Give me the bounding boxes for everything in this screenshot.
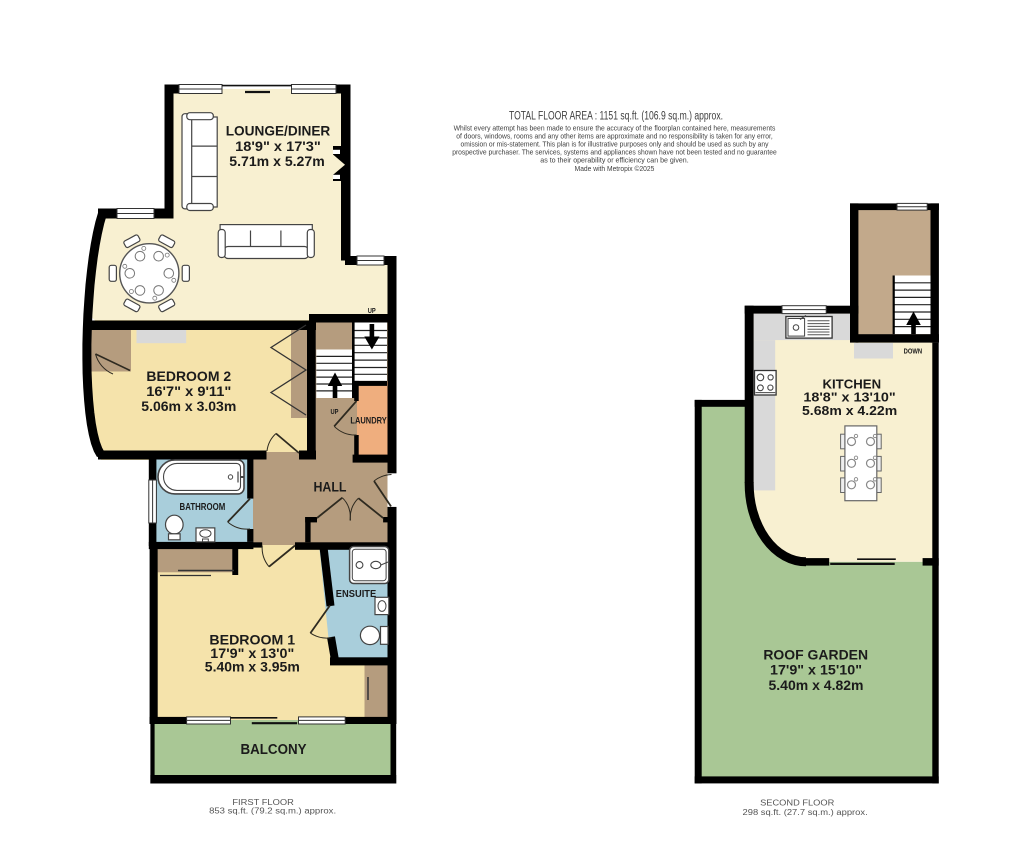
svg-text:5.06m x 3.03m: 5.06m x 3.03m: [141, 399, 236, 414]
svg-text:SECOND FLOOR: SECOND FLOOR: [760, 798, 834, 807]
svg-text:UP: UP: [331, 409, 339, 416]
svg-text:5.71m x 5.27m: 5.71m x 5.27m: [229, 153, 325, 169]
svg-text:BATHROOM: BATHROOM: [180, 502, 226, 513]
svg-text:DOWN: DOWN: [904, 348, 923, 355]
svg-text:298 sq.ft. (27.7 sq.m.) approx: 298 sq.ft. (27.7 sq.m.) approx.: [743, 808, 868, 817]
svg-text:Made with Metropix ©2025: Made with Metropix ©2025: [575, 164, 655, 173]
svg-text:BALCONY: BALCONY: [241, 742, 307, 758]
svg-text:LAUNDRY: LAUNDRY: [350, 416, 387, 426]
svg-text:LOUNGE/DINER: LOUNGE/DINER: [226, 123, 331, 139]
svg-text:16'7" x 9'11": 16'7" x 9'11": [146, 384, 231, 399]
svg-text:853 sq.ft. (79.2 sq.m.) approx: 853 sq.ft. (79.2 sq.m.) approx.: [209, 807, 336, 816]
svg-text:ROOF GARDEN: ROOF GARDEN: [763, 648, 868, 663]
svg-text:5.40m x 3.95m: 5.40m x 3.95m: [205, 659, 300, 674]
svg-text:5.68m x 4.22m: 5.68m x 4.22m: [802, 403, 897, 418]
svg-text:BEDROOM 2: BEDROOM 2: [146, 369, 231, 384]
svg-text:17'9" x 15'10": 17'9" x 15'10": [770, 663, 862, 678]
svg-text:ENSUITE: ENSUITE: [336, 589, 377, 600]
svg-text:18'9" x 17'3": 18'9" x 17'3": [235, 138, 321, 154]
svg-text:HALL: HALL: [314, 480, 347, 495]
svg-text:TOTAL FLOOR AREA : 1151 sq.ft.: TOTAL FLOOR AREA : 1151 sq.ft. (106.9 sq…: [509, 111, 723, 123]
svg-text:5.40m x 4.82m: 5.40m x 4.82m: [769, 678, 864, 693]
svg-text:UP: UP: [368, 308, 376, 315]
